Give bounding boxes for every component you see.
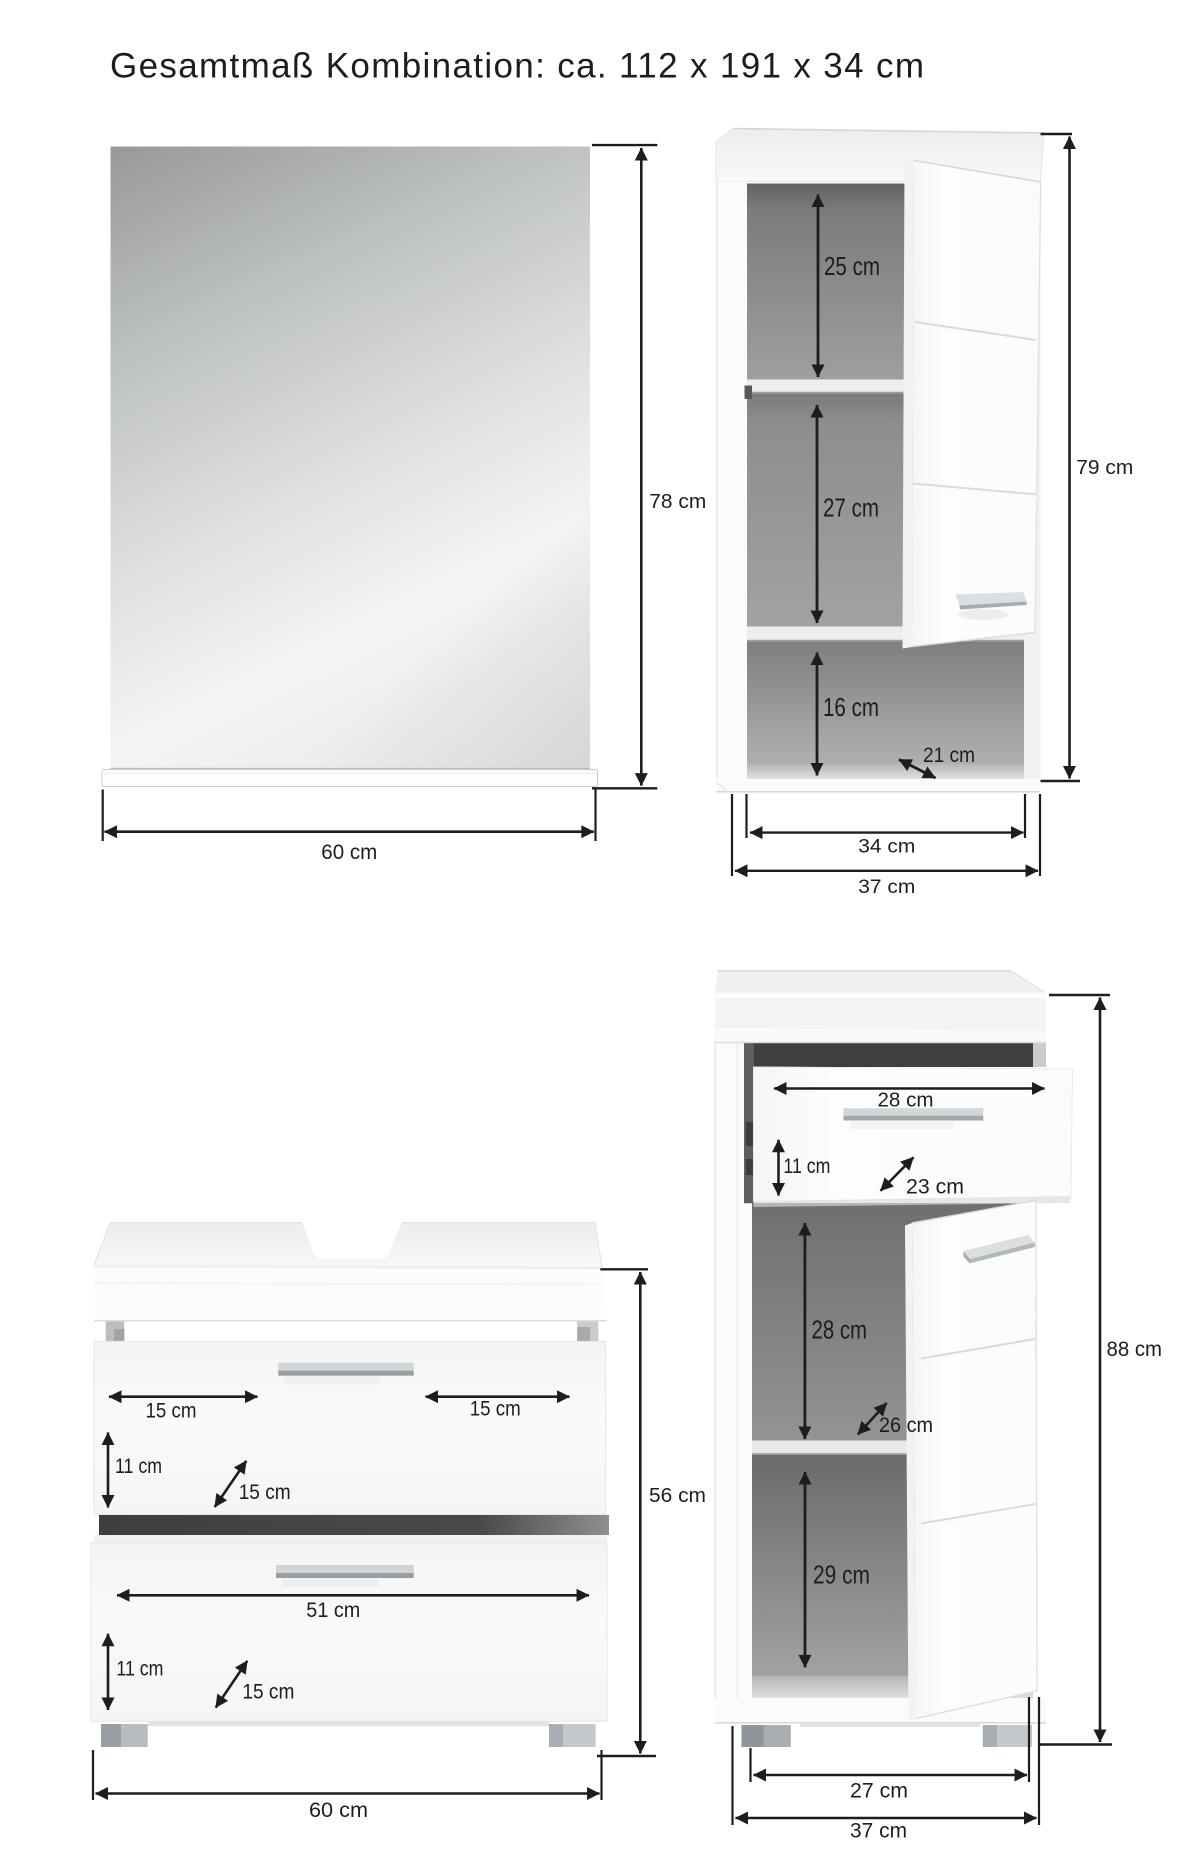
svg-text:26 cm: 26 cm [879, 1414, 933, 1437]
svg-text:16 cm: 16 cm [823, 692, 879, 722]
svg-text:29 cm: 29 cm [813, 1560, 870, 1590]
svg-text:Gesamtmaß Kombination: ca. 112: Gesamtmaß Kombination: ca. 112 x 191 x 3… [110, 47, 924, 86]
svg-text:28 cm: 28 cm [812, 1315, 868, 1345]
svg-text:23 cm: 23 cm [906, 1176, 964, 1199]
svg-text:79 cm: 79 cm [1076, 457, 1133, 479]
svg-text:15 cm: 15 cm [470, 1398, 521, 1421]
svg-text:37 cm: 37 cm [850, 1820, 907, 1843]
svg-text:27 cm: 27 cm [823, 493, 879, 523]
svg-text:88 cm: 88 cm [1107, 1338, 1163, 1361]
svg-text:11 cm: 11 cm [783, 1155, 830, 1178]
svg-text:27 cm: 27 cm [850, 1780, 908, 1803]
svg-text:56 cm: 56 cm [649, 1485, 706, 1507]
svg-text:78 cm: 78 cm [649, 491, 706, 513]
svg-text:25 cm: 25 cm [824, 251, 880, 281]
svg-text:11 cm: 11 cm [115, 1455, 162, 1478]
svg-text:34 cm: 34 cm [858, 836, 915, 858]
svg-text:11 cm: 11 cm [116, 1658, 163, 1681]
svg-text:60 cm: 60 cm [309, 1799, 368, 1822]
svg-text:21 cm: 21 cm [923, 744, 975, 767]
svg-text:15 cm: 15 cm [239, 1481, 291, 1504]
svg-text:28 cm: 28 cm [878, 1090, 934, 1112]
svg-text:51 cm: 51 cm [306, 1599, 360, 1622]
svg-text:15 cm: 15 cm [242, 1681, 294, 1704]
svg-text:37 cm: 37 cm [858, 876, 915, 898]
svg-text:15 cm: 15 cm [146, 1400, 197, 1423]
svg-text:60 cm: 60 cm [321, 841, 377, 864]
